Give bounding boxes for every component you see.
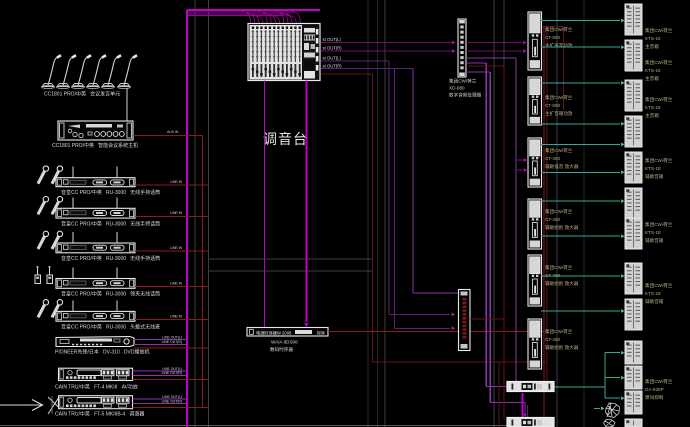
svg-text:KTS-18: KTS-18: [645, 291, 661, 296]
svg-text:集团CW/荷兰: 集团CW/荷兰: [545, 208, 573, 215]
svg-text:AUX IN: AUX IN: [167, 130, 179, 134]
svg-text:时序: 时序: [317, 329, 325, 336]
svg-text:CC1801 PRO/中英 会议发言单元: CC1801 PRO/中英 会议发言单元: [44, 91, 120, 98]
svg-text:LINE IN: LINE IN: [170, 246, 182, 250]
svg-text:CT-400: CT-400: [545, 337, 561, 342]
svg-text:CT-400: CT-400: [545, 156, 561, 161]
svg-text:st OUT(R): st OUT(R): [323, 46, 343, 51]
svg-text:KTS-18: KTS-18: [645, 166, 661, 171]
svg-text:KTS-18: KTS-18: [645, 36, 661, 41]
svg-text:st OUT(L): st OUT(L): [323, 56, 342, 61]
svg-text:XD-080: XD-080: [449, 86, 465, 91]
svg-text:数字音频处理器: 数字音频处理器: [449, 92, 482, 99]
svg-text:集团CW/荷兰: 集团CW/荷兰: [545, 147, 573, 154]
svg-text:音皇CC PRO/中英 RU-3000 无线手持话筒: 音皇CC PRO/中英 RU-3000 无线手持话筒: [61, 189, 160, 196]
svg-text:主音箱: 主音箱: [645, 43, 659, 50]
svg-text:st OUT(L): st OUT(L): [323, 37, 342, 42]
svg-text:音皇CC PRO/中英 RU-3000 无线手持话筒: 音皇CC PRO/中英 RU-3000 无线手持话筒: [61, 255, 160, 262]
svg-text:集团CW/荷兰: 集团CW/荷兰: [645, 157, 673, 164]
svg-text:KTS-18: KTS-18: [645, 68, 661, 73]
svg-text:集团CW/荷兰: 集团CW/荷兰: [449, 78, 477, 85]
svg-text:LINE IN: LINE IN: [170, 180, 182, 184]
svg-text:WAIA 8DS08: WAIA 8DS08: [271, 340, 298, 345]
svg-text:LINE IN: LINE IN: [170, 281, 182, 285]
svg-text:音皇CC PRO/中英 RU-3000 领夹无线话筒: 音皇CC PRO/中英 RU-3000 领夹无线话筒: [61, 291, 160, 298]
svg-text:集团CW/荷兰: 集团CW/荷兰: [645, 27, 673, 34]
svg-text:LINE IN: LINE IN: [170, 314, 182, 318]
svg-text:啸叫抑制: 啸叫抑制: [645, 394, 664, 401]
svg-text:st OUT(R): st OUT(R): [323, 64, 343, 69]
svg-text:CT-800: CT-800: [545, 35, 561, 40]
svg-text:CC1801 PRO/中英 智能会议系统主机: CC1801 PRO/中英 智能会议系统主机: [52, 142, 138, 149]
svg-text:集团CW/荷兰: 集团CW/荷兰: [545, 328, 573, 335]
svg-text:CT-800: CT-800: [545, 103, 561, 108]
svg-text:PIONEER先锋/日本 DV-310 DVD播放机: PIONEER先锋/日本 DV-310 DVD播放机: [55, 349, 149, 356]
svg-text:KTS-18: KTS-18: [645, 230, 661, 235]
svg-text:集团CW/荷兰: 集团CW/荷兰: [645, 221, 673, 228]
svg-text:集团CW/荷兰: 集团CW/荷兰: [545, 94, 573, 101]
svg-text:辅助音箱: 辅助音箱: [645, 237, 664, 244]
svg-text:CAIN TRU/中英 FT-4 MKIII AV功: CAIN TRU/中英 FT-4 MKIII AV功放: [55, 384, 138, 391]
svg-text:LINE IN: LINE IN: [170, 211, 182, 215]
svg-text:调音台: 调音台: [263, 131, 308, 147]
svg-text:集团CW/荷兰: 集团CW/荷兰: [645, 282, 673, 289]
svg-text:辅助低音 放大器: 辅助低音 放大器: [545, 163, 579, 170]
svg-text:辅助音箱: 辅助音箱: [645, 173, 664, 180]
svg-text:DA-828P: DA-828P: [645, 387, 664, 392]
svg-text:音皇CC PRO/中英 RU-3000 头戴式无线麦: 音皇CC PRO/中英 RU-3000 头戴式无线麦: [61, 324, 160, 331]
svg-text:辅助组别 放大器: 辅助组别 放大器: [545, 280, 579, 287]
svg-text:主音箱: 主音箱: [645, 75, 659, 82]
svg-text:CAIN TRU/中英 FT-5 MKIIIB-4: CAIN TRU/中英 FT-5 MKIIIB-4 调谐器: [55, 410, 144, 417]
svg-text:LINE OUT(R): LINE OUT(R): [162, 400, 182, 404]
svg-text:集团CW/荷兰: 集团CW/荷兰: [545, 264, 573, 271]
svg-text:主扩音箱功放: 主扩音箱功放: [545, 110, 573, 117]
svg-text:KTS-18: KTS-18: [645, 105, 661, 110]
svg-text:辅助音箱: 辅助音箱: [645, 298, 664, 305]
svg-text:电源时序器W 2008: 电源时序器W 2008: [256, 329, 292, 336]
svg-text:LINE OUT(L): LINE OUT(L): [162, 395, 182, 399]
svg-text:数码时序器: 数码时序器: [270, 346, 293, 353]
svg-text:集团CW/荷兰: 集团CW/荷兰: [545, 26, 573, 33]
svg-text:LINE OUT(L): LINE OUT(L): [162, 335, 182, 339]
svg-text:集团CW/荷兰: 集团CW/荷兰: [645, 96, 673, 103]
svg-text:集团CW/荷兰: 集团CW/荷兰: [645, 378, 673, 385]
svg-text:CT-400: CT-400: [545, 217, 561, 222]
svg-text:集团CW/荷兰: 集团CW/荷兰: [645, 59, 673, 66]
svg-text:辅助组别 放大器: 辅助组别 放大器: [545, 224, 579, 231]
svg-text:音皇CC PRO/中英 RU-3000 无线手持话筒: 音皇CC PRO/中英 RU-3000 无线手持话筒: [61, 220, 160, 227]
svg-text:主音箱: 主音箱: [645, 112, 659, 119]
svg-text:LINE OUT(R): LINE OUT(R): [162, 371, 182, 375]
svg-text:LINE OUT(R): LINE OUT(R): [162, 340, 182, 344]
svg-text:主扩低音功放: 主扩低音功放: [545, 42, 573, 49]
svg-text:辅助组别 放大器: 辅助组别 放大器: [545, 344, 579, 351]
